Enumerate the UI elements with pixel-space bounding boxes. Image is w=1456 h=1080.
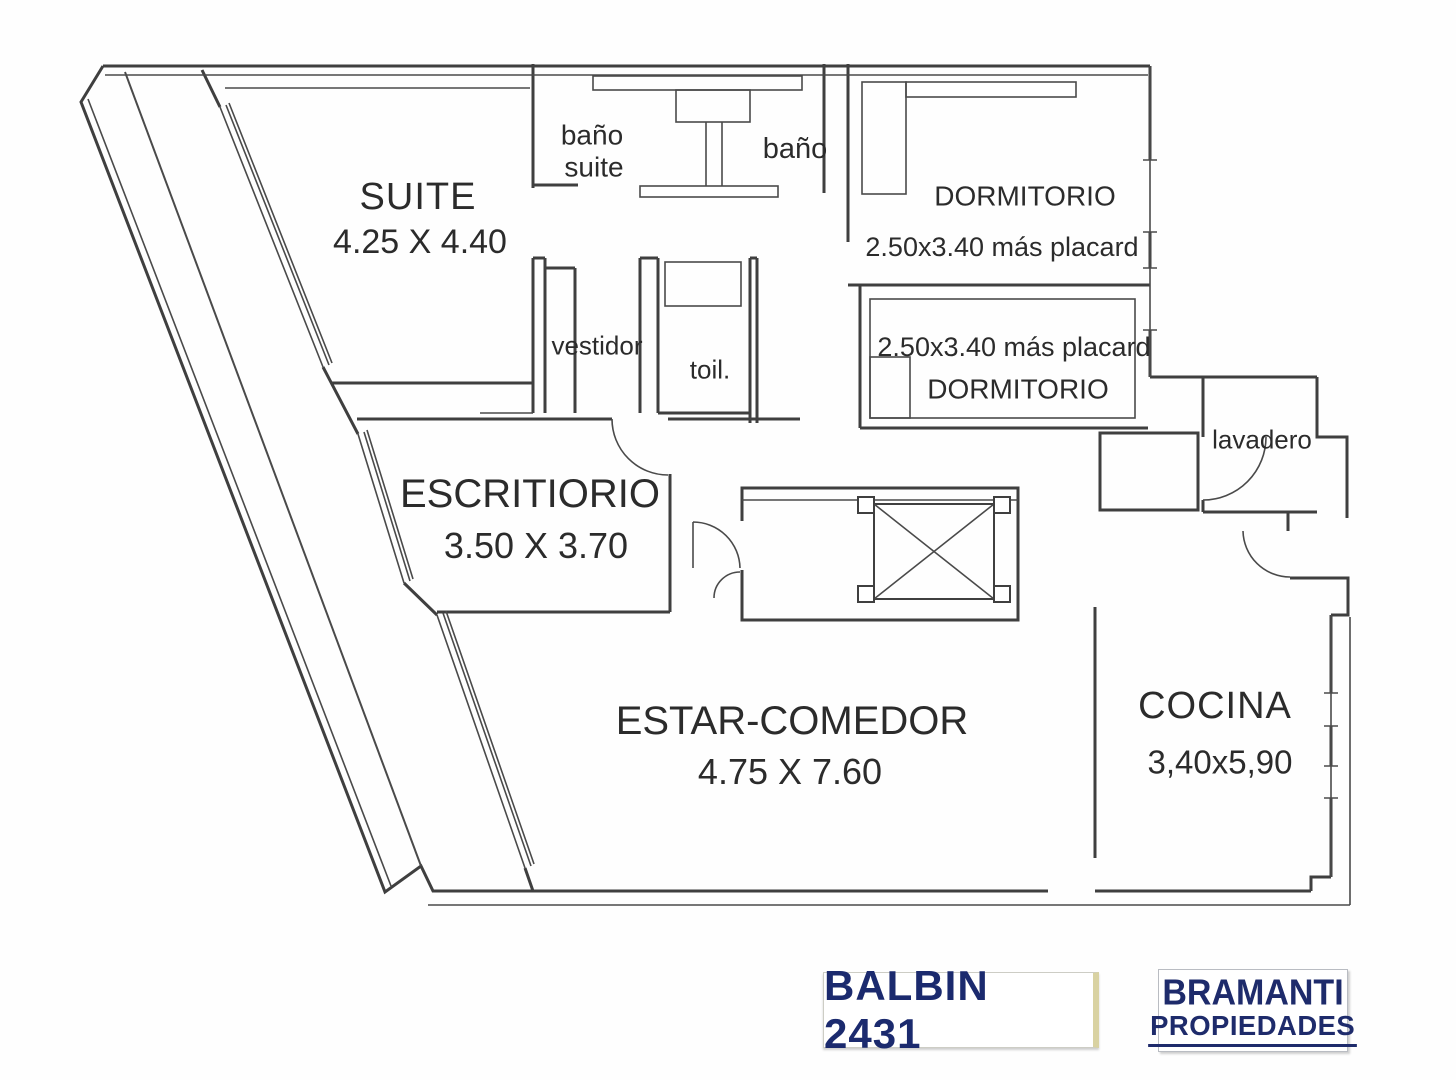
brand-name-text: BRAMANTI: [1162, 976, 1343, 1012]
label-lavadero: lavadero: [1212, 426, 1312, 453]
address-text: BALBIN 2431: [824, 962, 1093, 1058]
floor-plan-drawing: [0, 0, 1456, 1080]
label-bano-suite-line1: baño: [561, 120, 623, 149]
label-estar-comedor-dims: 4.75 X 7.60: [698, 753, 882, 791]
brand-subtitle-text: PROPIEDADES: [1148, 1010, 1357, 1046]
address-plate: BALBIN 2431: [823, 972, 1099, 1048]
label-dormitorio-2: DORMITORIO: [927, 374, 1108, 403]
label-dormitorio-1-dims: 2.50x3.40 más placard: [865, 233, 1138, 261]
label-escritorio-dims: 3.50 X 3.70: [444, 527, 628, 565]
label-dormitorio-1: DORMITORIO: [934, 181, 1115, 210]
label-toilette: toil.: [690, 356, 730, 383]
label-bano: baño: [763, 134, 828, 164]
label-escritorio: ESCRITIORIO: [400, 473, 660, 515]
label-cocina: COCINA: [1138, 687, 1292, 727]
brand-logo: BRAMANTI PROPIEDADES: [1158, 969, 1348, 1052]
label-suite-dims: 4.25 X 4.40: [333, 225, 507, 261]
floor-plan-page: SUITE 4.25 X 4.40 baño suite baño DORMIT…: [0, 0, 1456, 1080]
label-suite: SUITE: [360, 178, 477, 218]
label-bano-suite-line2: suite: [564, 152, 623, 181]
label-dormitorio-2-dims: 2.50x3.40 más placard: [877, 333, 1150, 361]
label-vestidor: vestidor: [551, 332, 642, 359]
label-estar-comedor: ESTAR-COMEDOR: [616, 700, 969, 742]
elevator-shaft: [858, 497, 1010, 602]
label-cocina-dims: 3,40x5,90: [1148, 746, 1293, 781]
